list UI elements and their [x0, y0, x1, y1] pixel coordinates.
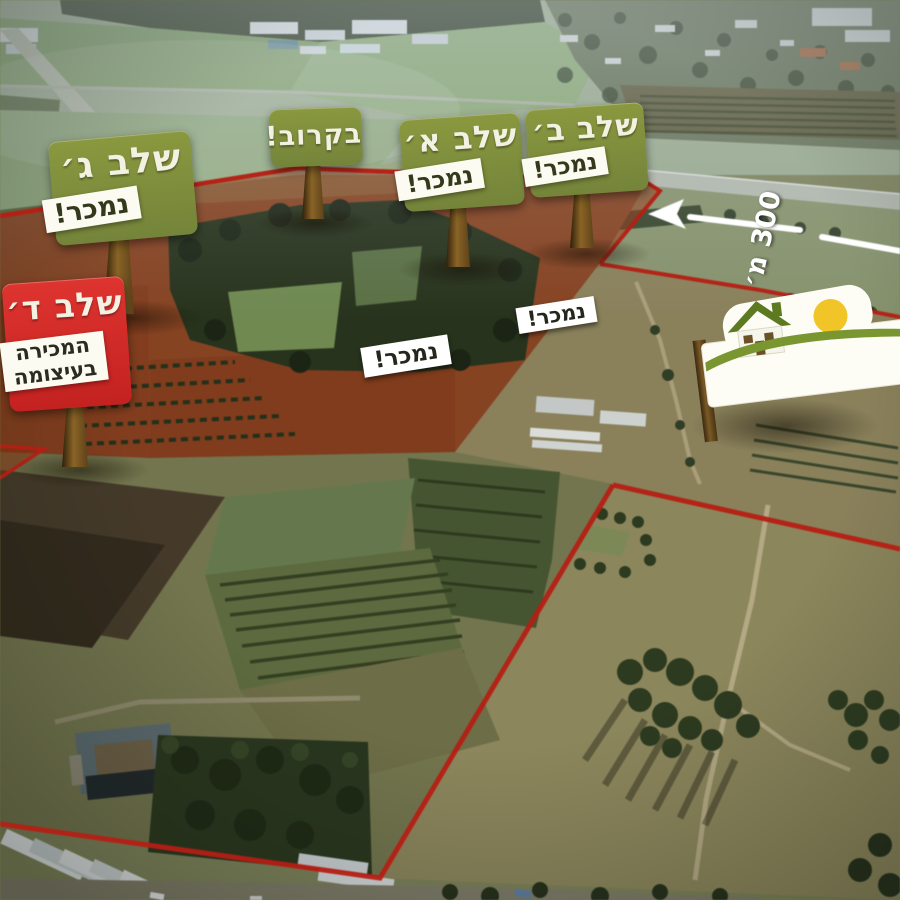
aerial-site-plan: 300 מ׳ שלב ג׳ נמכר! בקרוב! שלב א׳ נמכר! … [0, 0, 900, 900]
billboard-stage-a-status: נמכר! [394, 158, 485, 201]
billboard-stage-b-title: שלב ב׳ [526, 109, 646, 149]
billboard-coming-soon: בקרוב! [269, 106, 363, 167]
billboard-stage-d: שלב ד׳ המכירה בעיצומה [2, 276, 133, 412]
project-logo-sign: בטוח בכרכור מתחם שדות [668, 273, 900, 452]
billboard-coming-soon-title: בקרוב! [269, 106, 363, 165]
billboard-stage-b-status: נמכר! [521, 146, 609, 187]
billboard-stage-c-status: נמכר! [42, 186, 142, 234]
billboard-stage-a-title: שלב א׳ [399, 119, 521, 160]
billboard-stage-d-title: שלב ד׳ [2, 285, 126, 328]
billboard-stage-b: שלב ב׳ נמכר! [525, 102, 649, 198]
billboard-stage-a: שלב א׳ נמכר! [399, 112, 525, 212]
billboard-stage-c: שלב ג׳ נמכר! [48, 130, 199, 246]
billboard-stage-c-title: שלב ג׳ [48, 138, 193, 188]
